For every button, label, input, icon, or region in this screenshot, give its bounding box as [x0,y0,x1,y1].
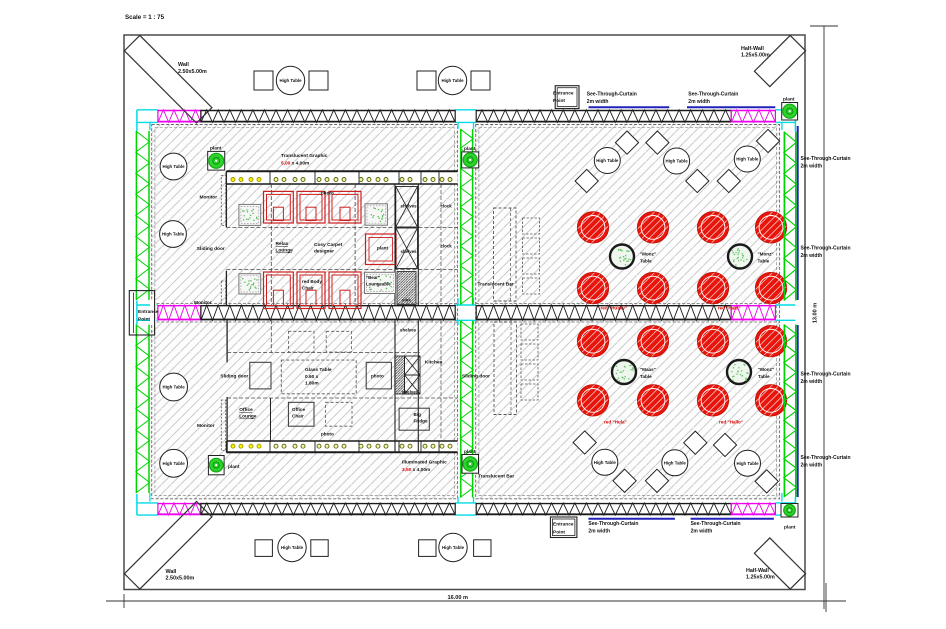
svg-text:Point: Point [553,98,565,104]
svg-text:Table: Table [640,259,652,264]
svg-text:shelves: shelves [402,390,419,395]
svg-text:5,00 x 4,00m: 5,00 x 4,00m [281,161,309,167]
svg-text:Illuminated Graphic: Illuminated Graphic [402,460,447,466]
svg-text:3,50 x 4,00m: 3,50 x 4,00m [402,467,430,473]
svg-text:plant: plant [464,146,476,152]
svg-text:2m width: 2m width [801,253,823,259]
svg-text:"Mooz": "Mooz" [640,252,656,257]
svg-text:Point: Point [553,530,565,536]
svg-text:High Table: High Table [736,157,759,162]
svg-text:Half-Wall: Half-Wall [746,568,769,574]
svg-text:High Table: High Table [281,545,304,550]
svg-text:See-Through-Curtain: See-Through-Curtain [801,372,851,378]
svg-text:"Maas": "Maas" [640,367,656,372]
svg-text:Point: Point [138,317,150,323]
svg-text:See-Through-Curtain: See-Through-Curtain [588,521,638,527]
svg-text:red "Halo": red "Halo" [718,306,741,311]
svg-text:red "Husky": red "Husky" [601,306,628,311]
svg-text:See-Through-Curtain: See-Through-Curtain [688,92,738,98]
svg-text:2.50x5.00m: 2.50x5.00m [166,576,195,582]
svg-text:Entrance: Entrance [138,309,159,315]
svg-text:High Table: High Table [162,164,185,169]
svg-text:photo: photo [321,191,334,196]
svg-text:0.60 x: 0.60 x [305,374,319,380]
svg-text:High Table: High Table [279,78,302,83]
svg-text:"Monz": "Monz" [758,367,774,372]
svg-text:Monitor: Monitor [197,423,215,429]
svg-text:High Table: High Table [163,385,186,390]
svg-text:Table: Table [758,374,770,379]
svg-text:High Table: High Table [596,158,619,163]
svg-text:Translucent Graphic: Translucent Graphic [281,153,328,159]
svg-text:1.25x5.00m: 1.25x5.00m [741,53,770,59]
svg-text:Loungeable: Loungeable [366,282,391,287]
svg-text:shelves: shelves [401,249,418,254]
svg-text:See-Through-Curtain: See-Through-Curtain [691,521,741,527]
svg-text:High Table: High Table [666,159,689,164]
svg-text:Sliding door: Sliding door [197,246,225,252]
svg-text:See-Through-Curtain: See-Through-Curtain [801,156,851,162]
svg-text:2.50x5.00m: 2.50x5.00m [178,69,207,75]
svg-text:Translucent Bar: Translucent Bar [478,474,514,480]
svg-text:"Bear": "Bear" [366,275,380,280]
svg-text:Sliding door: Sliding door [220,374,248,380]
svg-text:Office: Office [292,407,305,412]
svg-text:2m width: 2m width [587,99,609,105]
svg-text:sink: sink [402,298,411,303]
svg-text:Scale = 1 : 75: Scale = 1 : 75 [125,14,165,21]
svg-text:plant: plant [464,449,476,455]
svg-text:2m width: 2m width [801,379,823,385]
svg-text:Glass Table: Glass Table [305,367,332,373]
svg-text:Wall: Wall [166,569,177,575]
svg-text:2m width: 2m width [688,99,710,105]
svg-text:Fridge: Fridge [414,419,428,424]
svg-text:Table: Table [758,259,770,264]
svg-text:High Table: High Table [163,461,186,466]
svg-text:clock: clock [441,244,453,249]
svg-text:photo: photo [371,374,384,379]
svg-text:red Body: red Body [302,279,322,284]
svg-text:Kitchen: Kitchen [425,360,443,366]
svg-text:photo: photo [321,432,334,437]
svg-text:2m width: 2m width [588,529,610,535]
svg-text:clock: clock [441,204,453,209]
svg-text:red "Hallo": red "Hallo" [719,420,743,425]
svg-text:red "Hula": red "Hula" [604,420,627,425]
svg-text:High Table: High Table [441,78,464,83]
svg-text:High Table: High Table [442,545,465,550]
svg-text:Table: Table [640,374,652,379]
svg-text:designer: designer [314,249,334,255]
svg-text:High Table: High Table [594,460,617,465]
svg-text:See-Through-Curtain: See-Through-Curtain [801,455,851,461]
svg-text:Entrance: Entrance [553,91,574,97]
svg-text:plant: plant [377,246,388,251]
svg-text:plant: plant [228,464,240,470]
svg-text:Sliding door: Sliding door [462,374,490,380]
svg-text:Entrance: Entrance [553,522,574,528]
svg-text:16.00 m: 16.00 m [448,595,469,601]
svg-text:1.80m: 1.80m [305,381,319,387]
svg-text:Chair: Chair [302,286,314,291]
svg-text:High Table: High Table [162,232,185,237]
svg-text:plant: plant [783,97,795,103]
svg-text:High Table: High Table [736,461,759,466]
svg-text:1.25x5.00m: 1.25x5.00m [746,575,775,581]
svg-text:shelves: shelves [400,328,417,333]
svg-text:Translucent Bar: Translucent Bar [478,282,514,288]
svg-text:2m width: 2m width [801,164,823,170]
svg-text:Cosy Carpet: Cosy Carpet [314,242,343,248]
svg-text:13.00 m: 13.00 m [813,303,819,324]
svg-text:Monitor: Monitor [194,300,212,306]
svg-text:shelves: shelves [401,204,418,209]
svg-text:2m width: 2m width [691,529,713,535]
svg-text:"Monz": "Monz" [758,252,774,257]
svg-text:See-Through-Curtain: See-Through-Curtain [587,92,637,98]
svg-text:2m width: 2m width [801,463,823,469]
svg-text:High Table: High Table [664,460,687,465]
svg-text:Monitor: Monitor [200,195,218,201]
svg-text:plant: plant [210,145,222,151]
svg-text:See-Through-Curtain: See-Through-Curtain [801,246,851,252]
svg-text:Chair: Chair [292,414,304,419]
svg-text:Half-Wall: Half-Wall [741,46,764,52]
svg-text:Big: Big [414,412,422,417]
svg-text:plant: plant [784,525,796,531]
svg-text:Wall: Wall [178,62,189,68]
